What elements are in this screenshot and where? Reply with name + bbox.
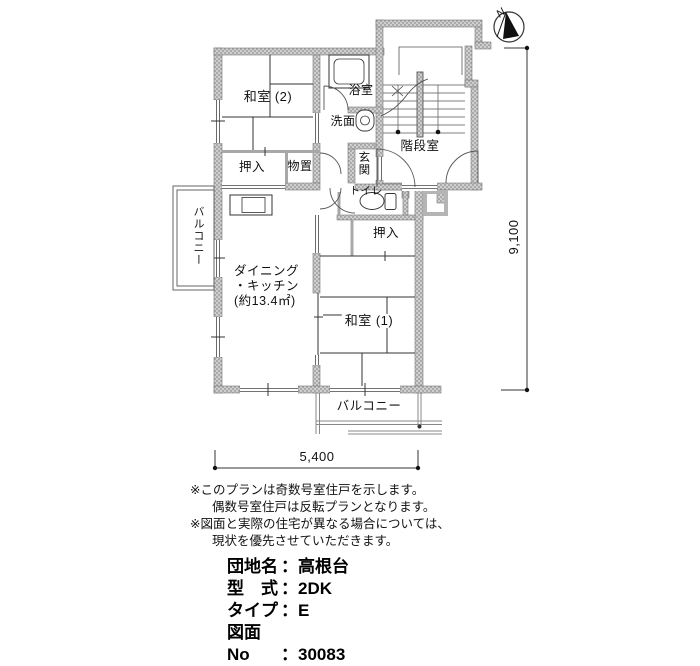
info-separator: ： — [281, 645, 298, 664]
info-separator: ： — [281, 601, 298, 620]
note-line-3: ※図面と実際の住宅が異なる場合については、 — [190, 516, 450, 533]
room-label-dining-kitchen: ダイニング ・キッチン (約13.4㎡) — [234, 264, 299, 309]
info-row-type: タイプ：E — [227, 600, 349, 622]
info-value-drawing-no: 30083 — [298, 645, 345, 664]
info-value-layout: 2DK — [298, 579, 332, 598]
room-label-balcony-bottom: バルコニー — [337, 400, 402, 414]
room-label-toilet: トイレ — [350, 186, 383, 198]
room-label-storage: 物置 — [287, 160, 312, 173]
info-row-danchi: 団地名：高根台 — [227, 556, 349, 578]
floorplan-page: { "compass": { "north": "N" }, "dimensio… — [0, 0, 700, 650]
staircase — [381, 47, 465, 137]
note-line-1: ※このプランは奇数号室住戸を示します。 — [190, 482, 450, 499]
room-label-washitsu-1: 和室 (1) — [342, 314, 397, 328]
dk-label-line3: (約13.4㎡) — [234, 294, 299, 309]
info-separator: ： — [281, 557, 298, 576]
info-row-layout: 型 式：2DK — [227, 578, 349, 600]
room-label-washroom: 洗面 — [330, 115, 355, 128]
room-label-closet-right: 押入 — [373, 227, 399, 241]
info-separator: ： — [281, 579, 298, 598]
note-line-4: 現状を優先させていただきます。 — [190, 533, 450, 550]
dk-label-line1: ダイニング — [234, 264, 299, 279]
room-label-entrance: 玄関 — [357, 151, 370, 176]
room-label-washitsu-2: 和室 (2) — [244, 90, 293, 104]
info-label-layout: 型 式 — [227, 578, 281, 600]
dimension-height-label: 9,100 — [507, 219, 521, 254]
room-label-balcony-left: バルコニー — [192, 206, 204, 266]
room-label-bath: 浴室 — [348, 84, 373, 97]
washbasin — [356, 110, 374, 131]
info-block: 団地名：高根台 型 式：2DK タイプ：E 図面No：30083 — [227, 556, 349, 644]
room-label-stairwell: 階段室 — [400, 140, 439, 154]
info-row-drawing-no: 図面No：30083 — [227, 622, 349, 644]
info-value-type: E — [298, 601, 309, 620]
info-value-danchi: 高根台 — [298, 557, 349, 576]
info-label-drawing-no: 図面No — [227, 622, 281, 666]
kitchen-counter — [230, 195, 272, 215]
floor-plan: 和室 (2) 浴室 洗面 階段室 押入 物置 玄関 トイレ 押入 バルコニー ダ… — [0, 0, 700, 650]
room-label-closet-top: 押入 — [239, 161, 265, 175]
note-line-2: 偶数号室住戸は反転プランとなります。 — [190, 499, 450, 516]
dk-label-line2: ・キッチン — [234, 279, 299, 294]
info-label-type: タイプ — [227, 600, 281, 622]
dimension-width-label: 5,400 — [299, 450, 334, 464]
notes: ※このプランは奇数号室住戸を示します。 偶数号室住戸は反転プランとなります。 ※… — [190, 482, 450, 550]
info-label-danchi: 団地名 — [227, 556, 281, 578]
door-arcs — [320, 86, 478, 213]
